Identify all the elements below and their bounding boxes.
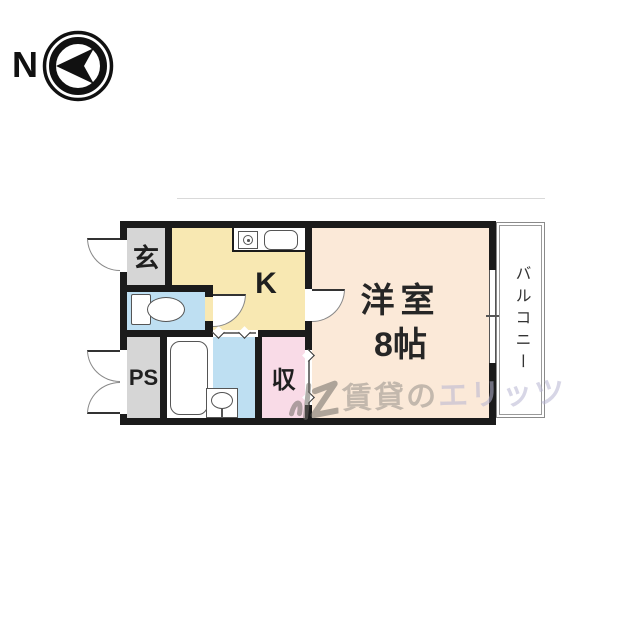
entrance-door-swing [87, 238, 120, 271]
wall-segment [205, 321, 213, 330]
bathtub-icon [170, 341, 208, 415]
wall-segment [305, 321, 312, 330]
stove-burner-dot [247, 239, 250, 242]
window-sliding [489, 270, 496, 363]
wall-segment [258, 330, 312, 337]
wall-segment [165, 228, 172, 285]
wall-segment [255, 337, 262, 418]
balcony-label: バルコニー [496, 232, 545, 408]
wall-segment [127, 285, 213, 292]
wall-segment [160, 337, 167, 418]
kitchen-sink-icon [264, 230, 298, 250]
compass-arrow-icon [40, 28, 116, 104]
wall-segment [305, 221, 312, 289]
wall-segment [205, 292, 213, 297]
main-room-label-line1: 洋室 [361, 279, 441, 323]
north-label: N [12, 44, 38, 86]
washbasin-drain [221, 408, 223, 417]
wall-segment [489, 363, 496, 425]
main-room-label-line2: 8帖 [374, 323, 427, 367]
wall-segment [120, 330, 213, 337]
kitchen-label: K [248, 266, 284, 302]
wall-segment [120, 221, 127, 240]
washbasin-bowl [211, 392, 233, 409]
pipe-space-label: PS [127, 337, 160, 418]
exterior-line [177, 198, 545, 199]
wall-segment [120, 418, 496, 425]
ps-door-swing-top [87, 350, 120, 382]
floorplan-canvas: N バルコニー [0, 0, 640, 640]
wall-segment [489, 221, 496, 270]
main-room-label: 洋室 8帖 [312, 228, 489, 418]
wall-segment [120, 272, 127, 350]
ps-door-swing-bottom [87, 382, 120, 414]
wall-segment [305, 405, 312, 418]
wall-segment [120, 414, 127, 425]
toilet-bowl-icon [147, 297, 185, 322]
storage-label: 収 [262, 337, 305, 418]
genkan-label: 玄 [127, 230, 165, 282]
wall-segment [305, 337, 312, 350]
